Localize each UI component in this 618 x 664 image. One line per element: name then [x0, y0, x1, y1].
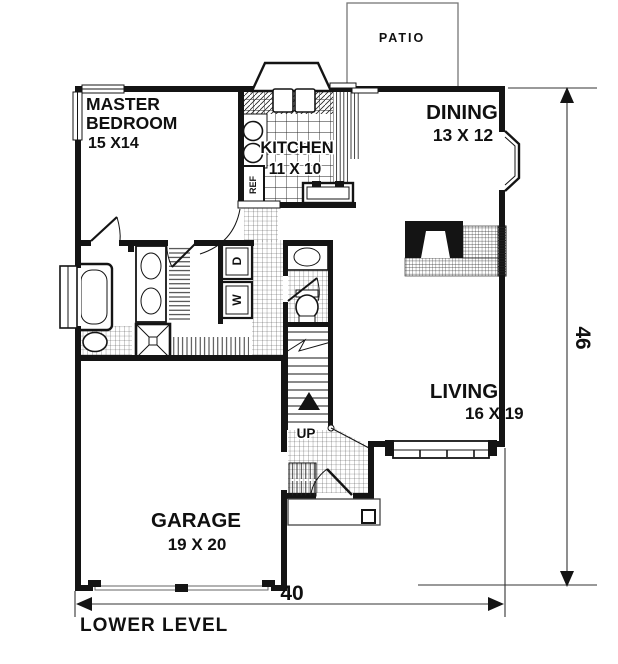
plan-title: LOWER LEVEL: [80, 615, 228, 636]
patio-label: PATIO: [379, 31, 425, 45]
garage-door-panel: [95, 586, 176, 590]
dryer-label: D: [230, 256, 244, 265]
master-door: [91, 217, 117, 241]
stair-break-line: [286, 340, 331, 352]
powder-toilet: [296, 295, 318, 319]
laundry-fixtures: D W: [222, 244, 252, 318]
garage-door-panel: [187, 586, 268, 590]
garage-entry-door-opening: [281, 452, 287, 490]
patio-slider-panel: [352, 88, 378, 93]
living-label: LIVING: [430, 380, 498, 403]
garage-dims: 19 X 20: [168, 535, 227, 554]
hall-tile-north: [244, 208, 278, 242]
stairs-up-label: UP: [297, 426, 316, 441]
kitchen-peninsula: [303, 183, 353, 203]
kitchen-sink: [295, 89, 315, 112]
refrigerator-label: REF: [248, 175, 258, 194]
closet-rod-horizontal-strip: [172, 337, 249, 358]
stair-treads: [288, 358, 328, 422]
master-dims: 15 X14: [88, 135, 139, 152]
shower-drain: [149, 337, 157, 345]
hall-tile-strip: [252, 240, 283, 358]
master-label-1: MASTER: [86, 94, 160, 114]
hearth: [405, 258, 504, 276]
patio-slider-panel: [330, 83, 356, 88]
floor-plan-page: PATIO REF: [0, 0, 618, 664]
garage-label: GARAGE: [151, 509, 241, 532]
powder-toilet-base: [299, 316, 315, 323]
kitchen-label: KITCHEN: [260, 139, 333, 157]
entry-closet: [289, 463, 316, 496]
dining-label: DINING: [426, 101, 498, 124]
range-burner: [244, 122, 263, 141]
window-living-right: [498, 226, 506, 276]
kitchen-bay-window: [252, 63, 331, 91]
dining-bay-window: [505, 131, 519, 191]
fireplace: [405, 221, 504, 276]
closet-rod-vertical-strip: [167, 247, 190, 321]
depth-dimension: 46: [571, 326, 594, 349]
living-dims: 16 X 19: [465, 404, 524, 423]
kitchen-sink: [273, 89, 293, 112]
counter-right: [333, 91, 359, 159]
floor-plan-drawing: PATIO REF: [0, 0, 618, 664]
dining-dims: 13 X 12: [433, 125, 494, 145]
patio: PATIO: [347, 3, 458, 88]
kitchen-dims: 11 X 10: [269, 161, 322, 178]
width-dimension: 40: [280, 582, 303, 605]
master-label-2: BEDROOM: [86, 113, 177, 133]
kitchen-hall-door: [238, 201, 280, 208]
firebox-opening: [421, 231, 450, 258]
vanity-double: [136, 246, 166, 322]
porch-post: [362, 510, 375, 523]
toilet: [83, 333, 107, 352]
peninsula-post: [335, 181, 344, 187]
peninsula-post: [312, 181, 321, 187]
washer-label: W: [230, 294, 244, 306]
stair-up-arrow: [298, 392, 320, 410]
